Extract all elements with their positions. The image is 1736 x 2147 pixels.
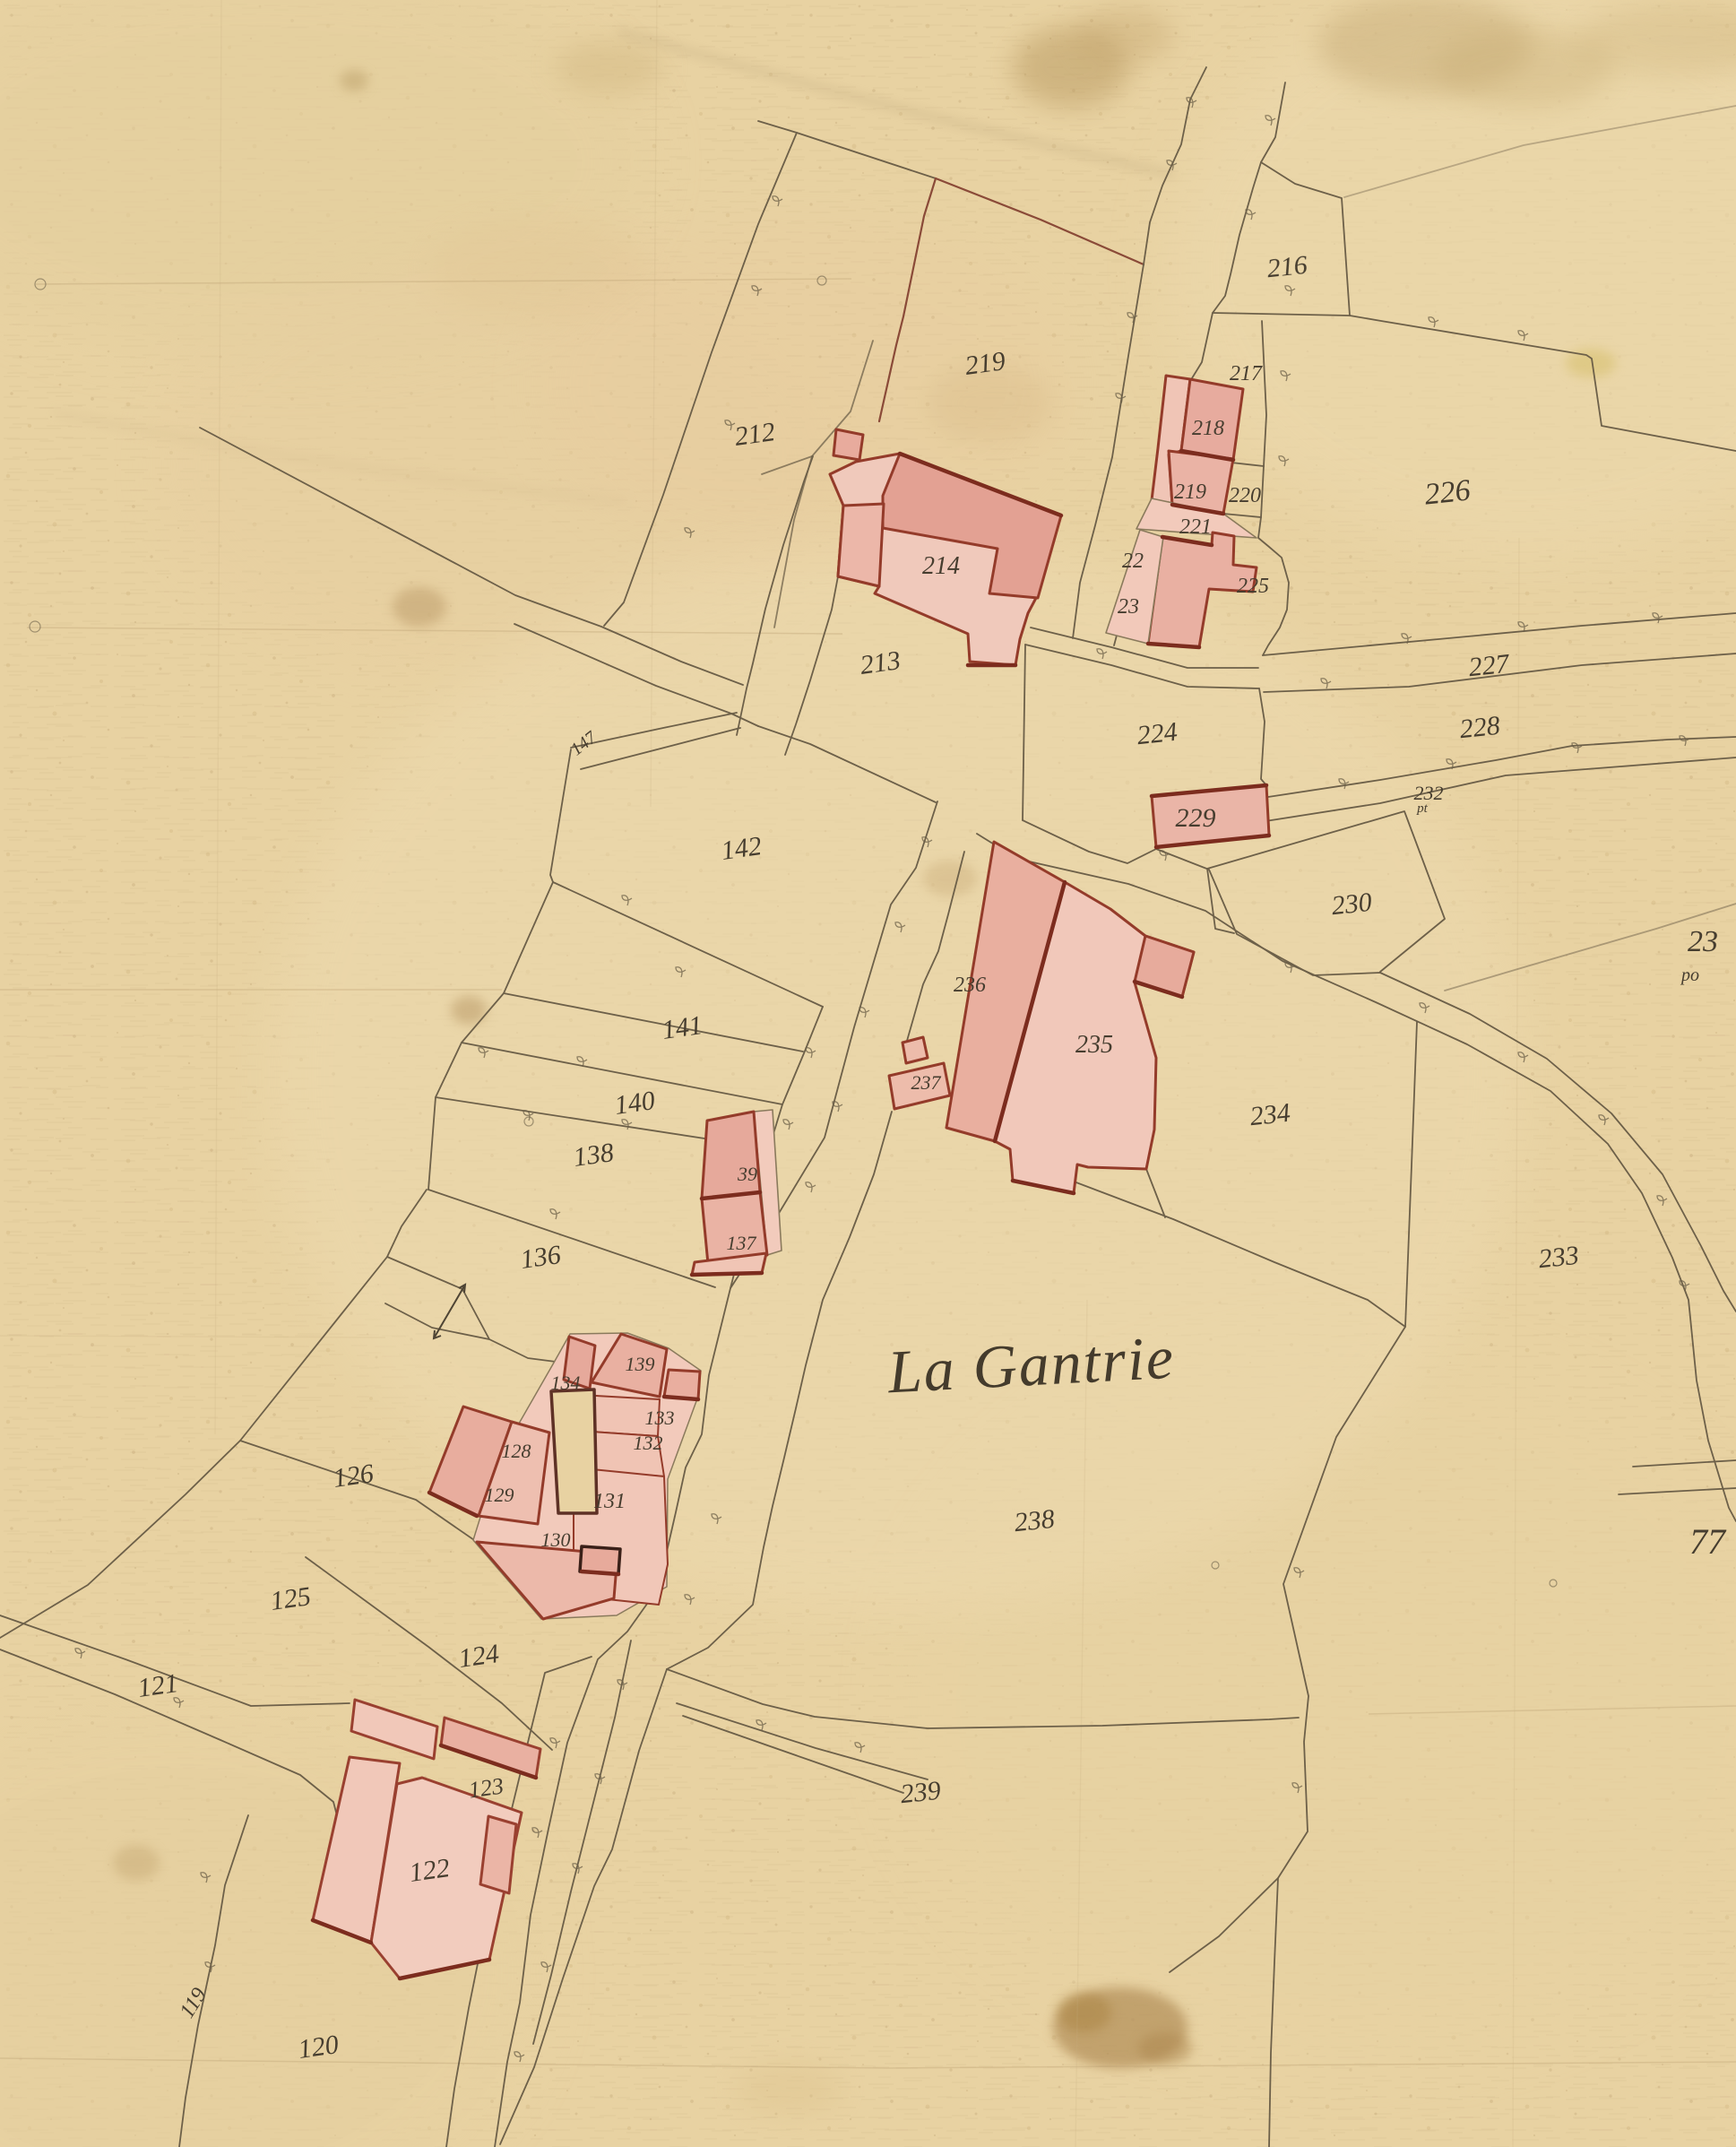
svg-text:233: 233 (1537, 1241, 1580, 1275)
svg-text:po: po (1680, 965, 1699, 985)
svg-text:224: 224 (1136, 717, 1179, 751)
svg-text:137: 137 (727, 1232, 757, 1254)
svg-text:220: 220 (1229, 484, 1261, 507)
svg-text:131: 131 (593, 1490, 626, 1513)
svg-text:213: 213 (859, 645, 903, 680)
svg-text:128: 128 (502, 1440, 531, 1462)
svg-text:219: 219 (963, 346, 1007, 381)
svg-text:126: 126 (332, 1459, 376, 1493)
svg-text:214: 214 (922, 552, 960, 580)
svg-text:219: 219 (1174, 480, 1206, 504)
svg-text:217: 217 (1230, 362, 1263, 385)
svg-text:129: 129 (485, 1484, 514, 1506)
svg-text:125: 125 (269, 1581, 313, 1616)
svg-text:218: 218 (1192, 417, 1224, 440)
svg-text:77: 77 (1689, 1521, 1727, 1562)
svg-text:133: 133 (645, 1407, 675, 1429)
svg-text:216: 216 (1265, 250, 1308, 284)
svg-text:139: 139 (626, 1353, 655, 1375)
svg-text:230: 230 (1330, 887, 1373, 922)
svg-text:141: 141 (661, 1010, 704, 1045)
svg-text:122: 122 (408, 1853, 452, 1888)
svg-text:123: 123 (467, 1772, 505, 1803)
svg-text:212: 212 (733, 417, 777, 452)
svg-text:239: 239 (899, 1776, 942, 1810)
svg-text:234: 234 (1248, 1098, 1291, 1132)
svg-text:124: 124 (457, 1639, 501, 1674)
svg-text:221: 221 (1179, 515, 1212, 539)
svg-text:142: 142 (720, 831, 764, 866)
svg-text:235: 235 (1075, 1031, 1113, 1059)
svg-text:228: 228 (1458, 711, 1501, 745)
svg-text:138: 138 (572, 1138, 616, 1173)
svg-text:121: 121 (136, 1668, 180, 1703)
svg-text:226: 226 (1423, 473, 1473, 511)
svg-text:237: 237 (911, 1071, 942, 1094)
svg-text:22: 22 (1122, 550, 1144, 573)
svg-text:130: 130 (541, 1528, 571, 1551)
svg-text:227: 227 (1467, 649, 1512, 683)
svg-text:132: 132 (634, 1432, 663, 1454)
svg-text:140: 140 (613, 1086, 657, 1121)
svg-text:134: 134 (551, 1372, 581, 1394)
svg-text:23: 23 (1688, 925, 1718, 958)
svg-text:225: 225 (1237, 575, 1269, 598)
svg-text:pt: pt (1416, 801, 1429, 816)
svg-text:39: 39 (737, 1163, 757, 1185)
svg-text:236: 236 (954, 974, 986, 997)
svg-text:23: 23 (1118, 595, 1139, 619)
svg-text:229: 229 (1176, 803, 1216, 833)
svg-text:120: 120 (297, 2030, 341, 2065)
svg-text:238: 238 (1013, 1504, 1056, 1538)
svg-text:136: 136 (519, 1240, 563, 1275)
